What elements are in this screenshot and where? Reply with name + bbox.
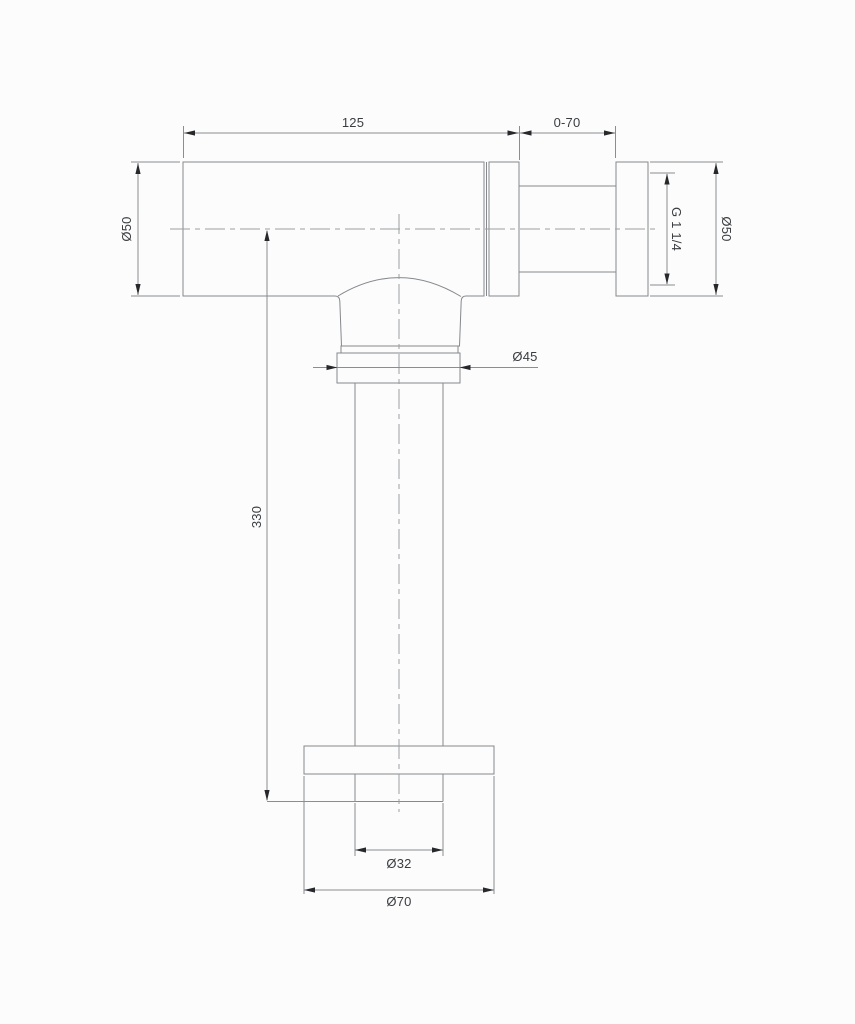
arrowhead bbox=[664, 174, 669, 185]
dim-label-dia70: Ø70 bbox=[386, 894, 411, 909]
arrowhead bbox=[184, 130, 195, 135]
drawing-page: 125 0-70 Ø50 G 1 1/4 Ø50 bbox=[0, 0, 855, 1024]
dim-top-width: 125 bbox=[184, 115, 520, 160]
dim-label-330: 330 bbox=[249, 506, 264, 528]
arrowhead bbox=[135, 163, 140, 174]
dim-label-0-70: 0-70 bbox=[554, 115, 581, 130]
arrowhead bbox=[713, 163, 718, 174]
arrowhead bbox=[264, 790, 269, 801]
arrowhead bbox=[355, 847, 366, 852]
arrowhead bbox=[713, 284, 718, 295]
arrowhead bbox=[604, 130, 615, 135]
dim-label-dia50-left: Ø50 bbox=[119, 216, 134, 241]
trap-body-outline bbox=[183, 162, 484, 346]
technical-drawing: 125 0-70 Ø50 G 1 1/4 Ø50 bbox=[0, 0, 855, 1024]
dim-thread-size: G 1 1/4 bbox=[650, 173, 684, 285]
arrowhead bbox=[508, 130, 519, 135]
dim-label-dia32: Ø32 bbox=[386, 856, 411, 871]
dim-label-thread: G 1 1/4 bbox=[669, 207, 684, 251]
dim-base-flange-diameter: Ø70 bbox=[304, 776, 494, 909]
dim-tube-diameter: Ø32 bbox=[355, 803, 443, 871]
arrowhead bbox=[664, 274, 669, 285]
arrowhead bbox=[460, 365, 471, 370]
dim-label-125: 125 bbox=[342, 115, 364, 130]
arrowhead bbox=[483, 887, 494, 892]
dim-label-dia45: Ø45 bbox=[512, 349, 537, 364]
arrowhead bbox=[432, 847, 443, 852]
center-lines bbox=[170, 214, 657, 812]
dim-adjustment-range: 0-70 bbox=[520, 115, 616, 158]
arrowhead bbox=[521, 130, 532, 135]
dim-label-dia50-right: Ø50 bbox=[719, 216, 734, 241]
arrowhead bbox=[135, 284, 140, 295]
arrowhead bbox=[264, 230, 269, 241]
arrowhead bbox=[327, 365, 338, 370]
part-outline bbox=[183, 162, 648, 802]
dim-nut-diameter: Ø45 bbox=[313, 349, 538, 370]
dim-connector-diameter: Ø50 bbox=[650, 162, 734, 296]
arrowhead bbox=[304, 887, 315, 892]
